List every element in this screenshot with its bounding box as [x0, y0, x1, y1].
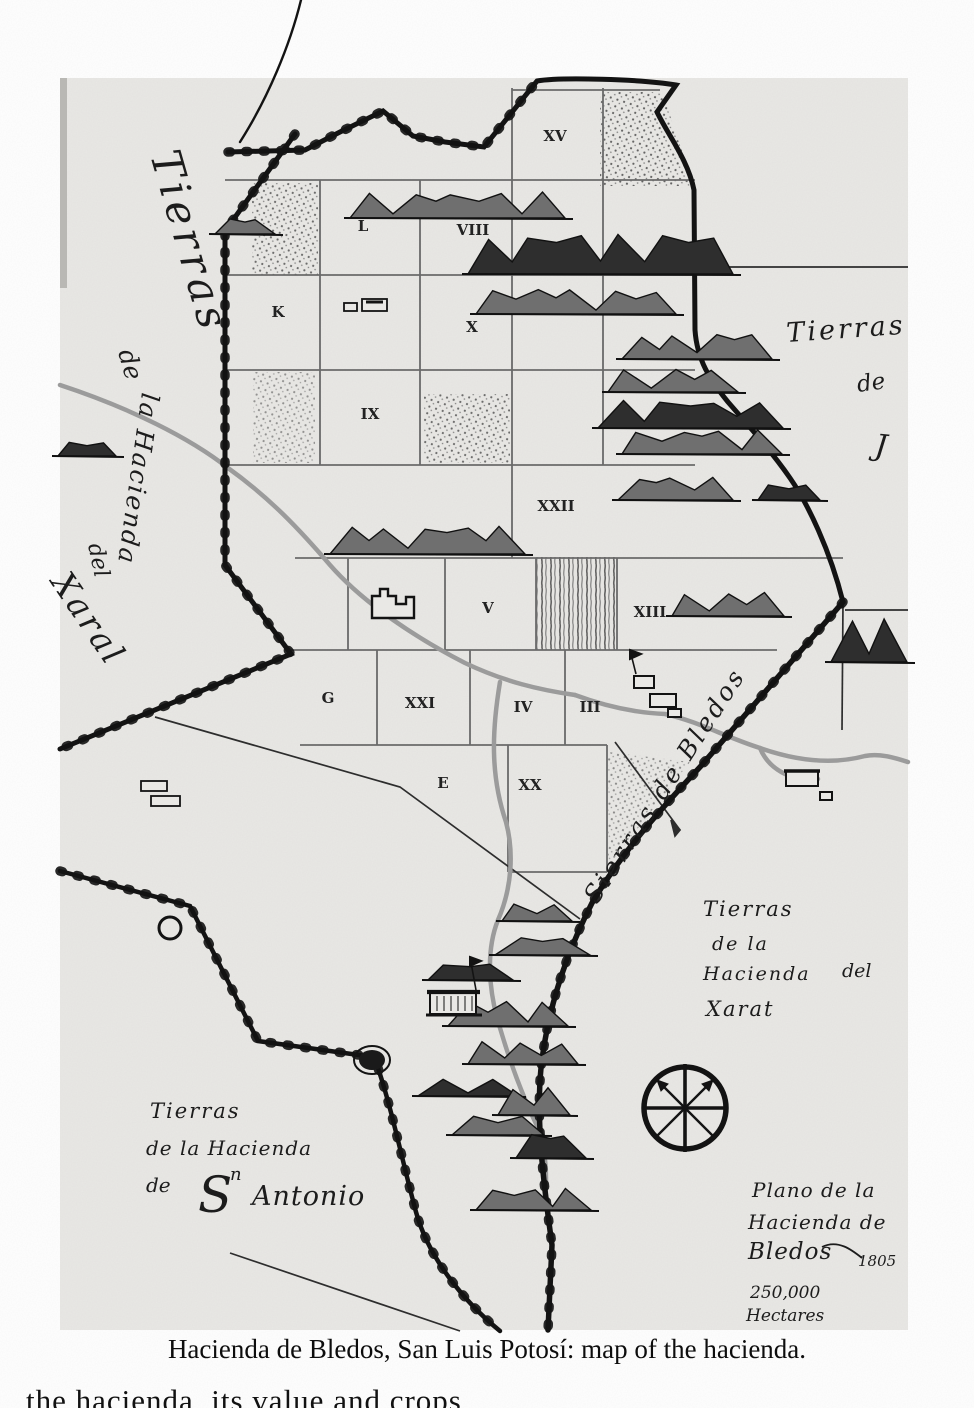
- mountain-base-line: [470, 314, 684, 315]
- parcel-label-IX: IX: [361, 405, 380, 423]
- mountain-base-line: [344, 218, 573, 219]
- parcel-label-L: L: [358, 217, 369, 235]
- parcel-label-XXII: XXII: [537, 497, 574, 515]
- mountain-base-line: [592, 428, 791, 429]
- mountain-base-line: [209, 234, 283, 235]
- mountain-base-line: [612, 500, 741, 501]
- parcel-label-XIII: XIII: [634, 603, 667, 621]
- hacienda-map-drawing: XVLVIIIKXIXXXIIVXIIIGXXIIVIIIEXX Tierras…: [0, 0, 974, 1408]
- svg-text:de: de: [146, 1173, 171, 1197]
- svg-text:del: del: [842, 960, 871, 982]
- svg-text:de la: de la: [712, 933, 769, 955]
- mountain-base-line: [489, 955, 598, 956]
- figure-caption: Hacienda de Bledos, San Luis Potosí: map…: [0, 1334, 974, 1365]
- cropped-text-line: the hacienda, its value and crops: [26, 1383, 946, 1408]
- mountain-base-line: [666, 616, 792, 617]
- cartouche-line2: Hacienda de: [747, 1210, 886, 1234]
- compass-rose-icon: [643, 1064, 727, 1152]
- parcel-label-XX: XX: [518, 776, 542, 794]
- parcel-label-VIII: VIII: [456, 221, 490, 239]
- mountain-base-line: [616, 359, 780, 360]
- mountain-base-line: [825, 662, 915, 663]
- mountain-base-line: [752, 500, 828, 501]
- svg-text:Tierras: Tierras: [703, 897, 794, 921]
- mountain-base-line: [510, 1158, 594, 1159]
- parcel-label-G: G: [322, 689, 335, 707]
- area-value: 250,000: [749, 1283, 820, 1303]
- svg-text:n: n: [230, 1164, 242, 1185]
- svg-text:Hacienda: Hacienda: [702, 963, 811, 985]
- svg-text:Xarat: Xarat: [704, 997, 774, 1021]
- mountain-base-line: [492, 1115, 578, 1116]
- mountain-base-line: [462, 1064, 586, 1065]
- parcel-label-IV: IV: [514, 698, 533, 716]
- mountain-base-line: [602, 392, 746, 393]
- mountain-base-line: [470, 1210, 599, 1211]
- mountain-base-line: [422, 980, 521, 981]
- svg-text:Tierras: Tierras: [150, 1099, 241, 1123]
- mountain-base-line: [462, 274, 741, 275]
- parcel-label-K: K: [271, 303, 285, 321]
- mountain-base-line: [616, 454, 790, 455]
- svg-text:de la Hacienda: de la Hacienda: [146, 1136, 312, 1160]
- svg-text:S: S: [198, 1166, 232, 1224]
- parcel-label-V: V: [481, 599, 494, 617]
- area-unit: Hectares: [745, 1306, 825, 1326]
- parcel-label-III: III: [579, 698, 600, 716]
- mountain-base-line: [442, 1026, 576, 1027]
- mountain-base-line: [496, 921, 580, 922]
- cartouche-line3: Bledos: [747, 1239, 832, 1265]
- parcel-label-E: E: [437, 774, 448, 792]
- svg-text:Antonio: Antonio: [249, 1181, 365, 1212]
- scanned-map-page: XVLVIIIKXIXXXIIVXIIIGXXIIVIIIEXX Tierras…: [0, 0, 974, 1408]
- mountain-base-line: [324, 554, 533, 555]
- parcel-label-XXI: XXI: [405, 694, 435, 712]
- cartouche-line1: Plano de la: [751, 1178, 875, 1202]
- east-territory-line2: de: [855, 368, 887, 398]
- parcel-label-XV: XV: [543, 127, 567, 145]
- mountain-base-line: [52, 456, 124, 457]
- pond: [359, 1050, 385, 1070]
- parcel-label-X: X: [466, 318, 478, 336]
- cartouche-year: 1805: [858, 1252, 896, 1270]
- mountain-range: [468, 1042, 578, 1064]
